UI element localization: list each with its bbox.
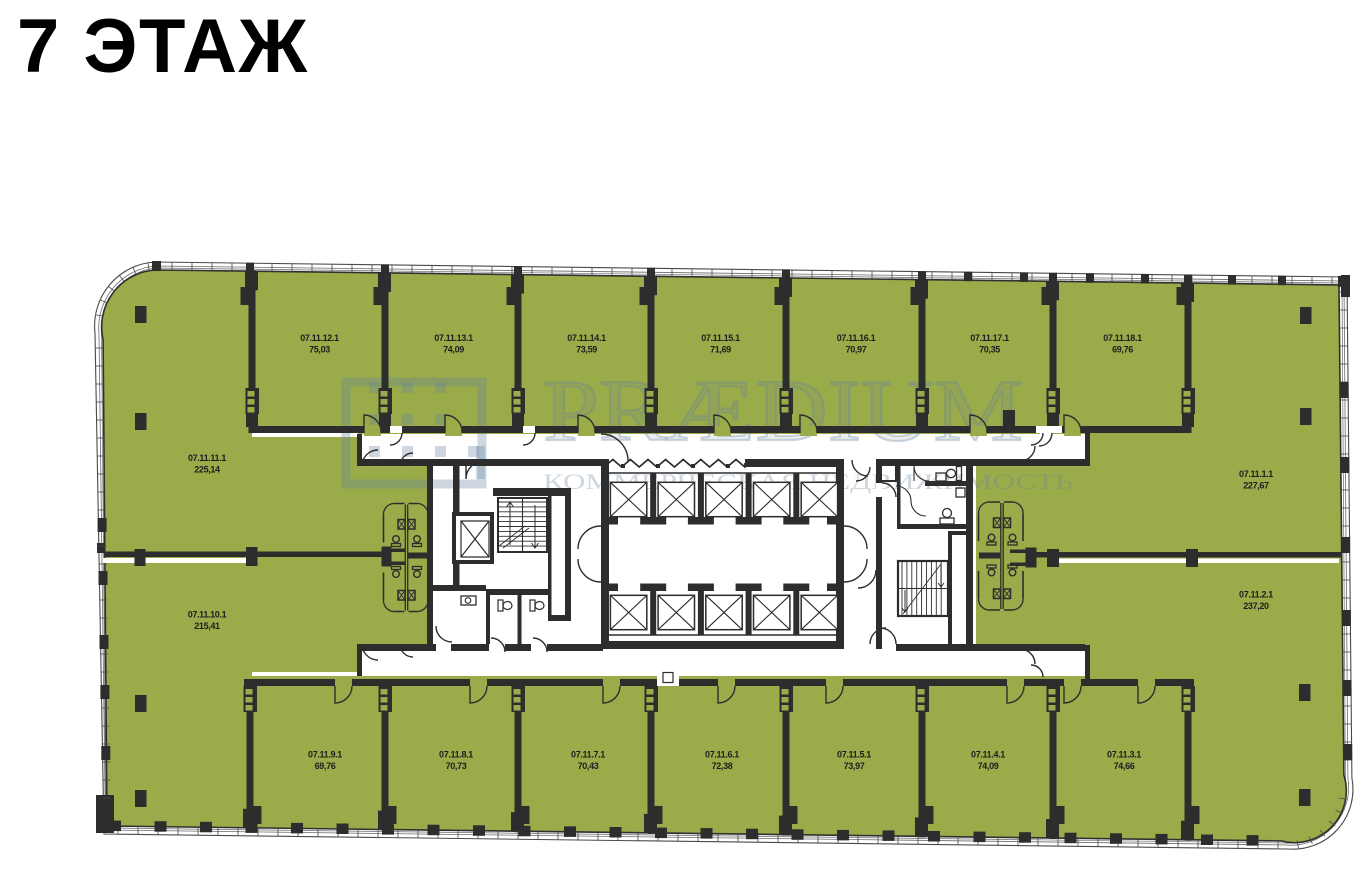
svg-text:07.11.7.1: 07.11.7.1 bbox=[571, 750, 605, 760]
svg-text:69,76: 69,76 bbox=[1112, 345, 1133, 355]
svg-text:07.11.10.1: 07.11.10.1 bbox=[188, 610, 227, 620]
svg-text:71,69: 71,69 bbox=[710, 345, 731, 355]
svg-text:07.11.8.1: 07.11.8.1 bbox=[439, 750, 473, 760]
svg-text:07.11.18.1: 07.11.18.1 bbox=[1103, 333, 1142, 343]
svg-text:70,73: 70,73 bbox=[446, 761, 467, 771]
svg-text:07.11.4.1: 07.11.4.1 bbox=[971, 750, 1005, 760]
svg-text:70,35: 70,35 bbox=[979, 345, 1000, 355]
svg-text:75,03: 75,03 bbox=[309, 345, 330, 355]
svg-text:70,43: 70,43 bbox=[578, 761, 599, 771]
svg-text:07.11.14.1: 07.11.14.1 bbox=[567, 333, 606, 343]
svg-text:07.11.17.1: 07.11.17.1 bbox=[970, 333, 1009, 343]
svg-text:73,59: 73,59 bbox=[576, 345, 597, 355]
svg-text:07.11.2.1: 07.11.2.1 bbox=[1239, 590, 1273, 600]
svg-text:07.11.11.1: 07.11.11.1 bbox=[188, 453, 226, 463]
svg-text:227,67: 227,67 bbox=[1243, 481, 1269, 491]
svg-text:07.11.9.1: 07.11.9.1 bbox=[308, 750, 342, 760]
svg-text:69,76: 69,76 bbox=[315, 761, 336, 771]
svg-text:74,09: 74,09 bbox=[443, 345, 464, 355]
svg-text:07.11.1.1: 07.11.1.1 bbox=[1239, 469, 1273, 479]
svg-text:07.11.15.1: 07.11.15.1 bbox=[701, 333, 740, 343]
svg-text:70,97: 70,97 bbox=[846, 345, 867, 355]
svg-text:07.11.6.1: 07.11.6.1 bbox=[705, 750, 739, 760]
svg-text:74,66: 74,66 bbox=[1114, 761, 1135, 771]
svg-text:07.11.5.1: 07.11.5.1 bbox=[837, 750, 871, 760]
svg-text:225,14: 225,14 bbox=[194, 465, 220, 475]
svg-text:07.11.3.1: 07.11.3.1 bbox=[1107, 750, 1141, 760]
svg-text:07.11.12.1: 07.11.12.1 bbox=[300, 333, 339, 343]
svg-text:72,38: 72,38 bbox=[712, 761, 733, 771]
svg-text:74,09: 74,09 bbox=[978, 761, 999, 771]
svg-text:07.11.13.1: 07.11.13.1 bbox=[434, 333, 473, 343]
svg-text:07.11.16.1: 07.11.16.1 bbox=[837, 333, 876, 343]
svg-text:237,20: 237,20 bbox=[1243, 601, 1269, 611]
svg-text:73,97: 73,97 bbox=[844, 761, 865, 771]
svg-text:215,41: 215,41 bbox=[194, 621, 220, 631]
svg-text:7 ЭТАЖ: 7 ЭТАЖ bbox=[17, 4, 309, 89]
